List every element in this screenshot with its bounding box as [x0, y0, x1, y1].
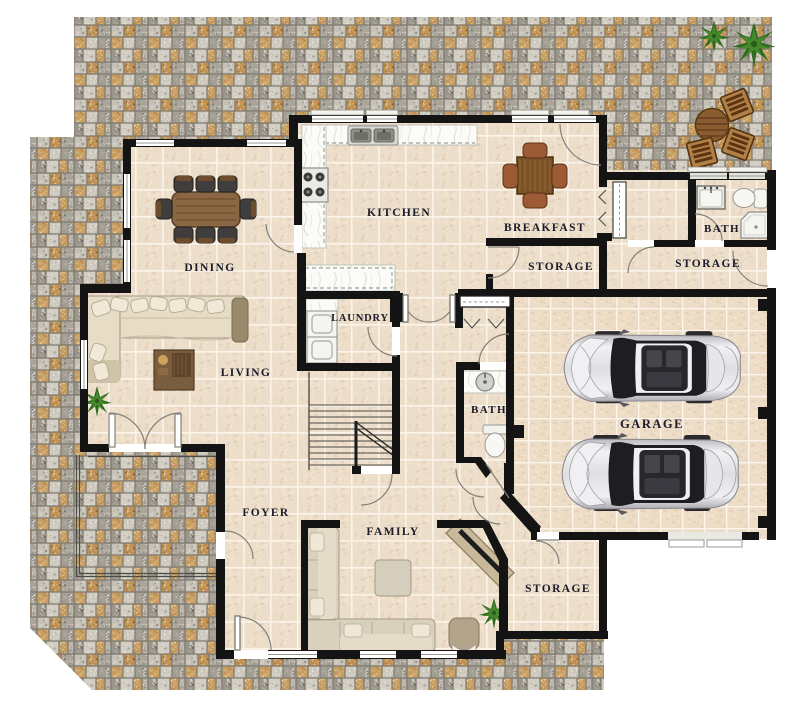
- svg-text:BATH: BATH: [704, 223, 740, 235]
- svg-text:KITCHEN: KITCHEN: [367, 207, 431, 219]
- svg-text:STORAGE: STORAGE: [528, 261, 594, 273]
- svg-text:BATH: BATH: [471, 404, 507, 416]
- svg-text:FOYER: FOYER: [242, 507, 289, 519]
- svg-text:LAUNDRY: LAUNDRY: [331, 313, 389, 324]
- svg-text:GARAGE: GARAGE: [620, 417, 684, 431]
- svg-text:FAMILY: FAMILY: [366, 526, 419, 538]
- svg-text:STORAGE: STORAGE: [675, 258, 741, 270]
- svg-text:LIVING: LIVING: [221, 367, 272, 379]
- svg-text:BREAKFAST: BREAKFAST: [504, 222, 586, 234]
- svg-text:STORAGE: STORAGE: [525, 583, 591, 595]
- svg-text:DINING: DINING: [184, 262, 235, 274]
